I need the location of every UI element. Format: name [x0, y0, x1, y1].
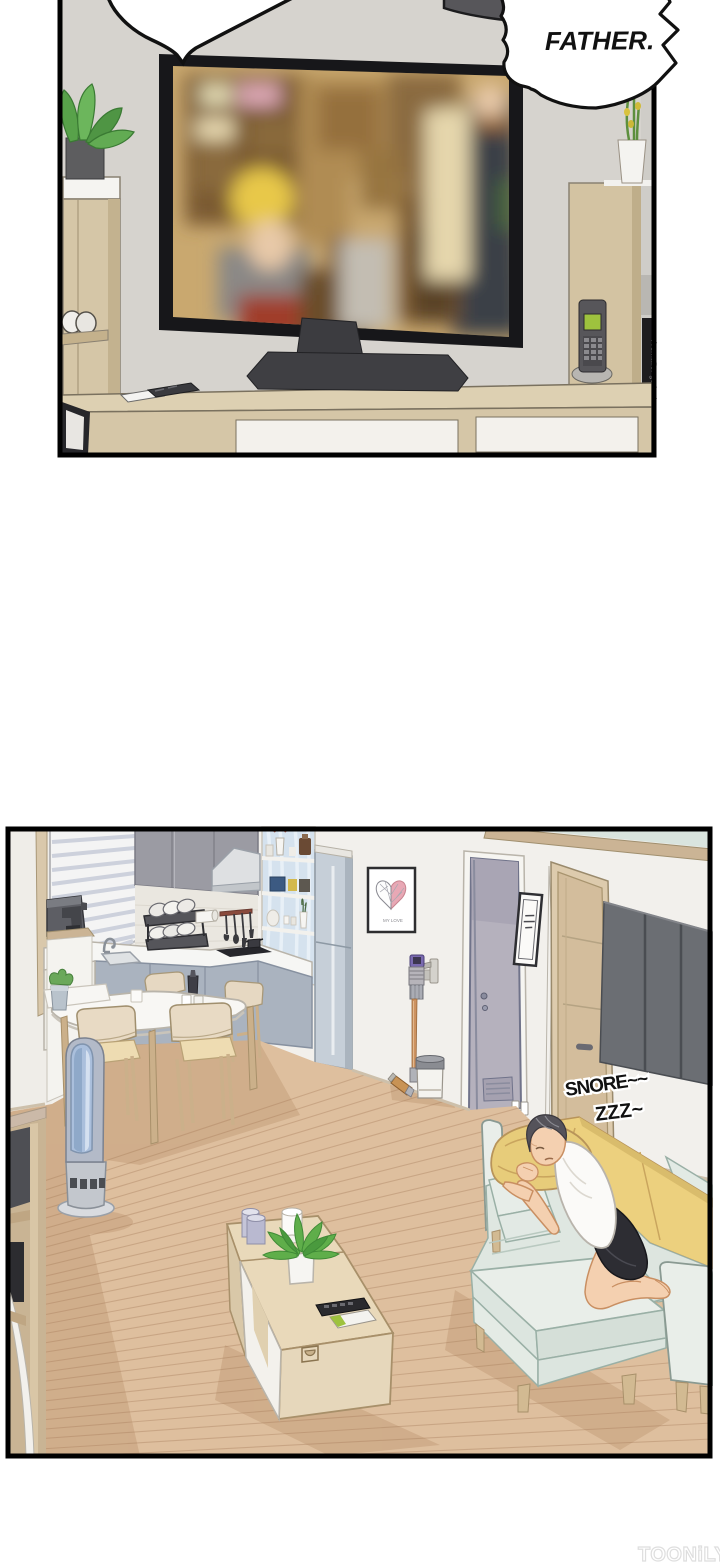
- svg-text:MY LOVE: MY LOVE: [383, 918, 403, 923]
- svg-text:FATHER.: FATHER.: [545, 25, 655, 56]
